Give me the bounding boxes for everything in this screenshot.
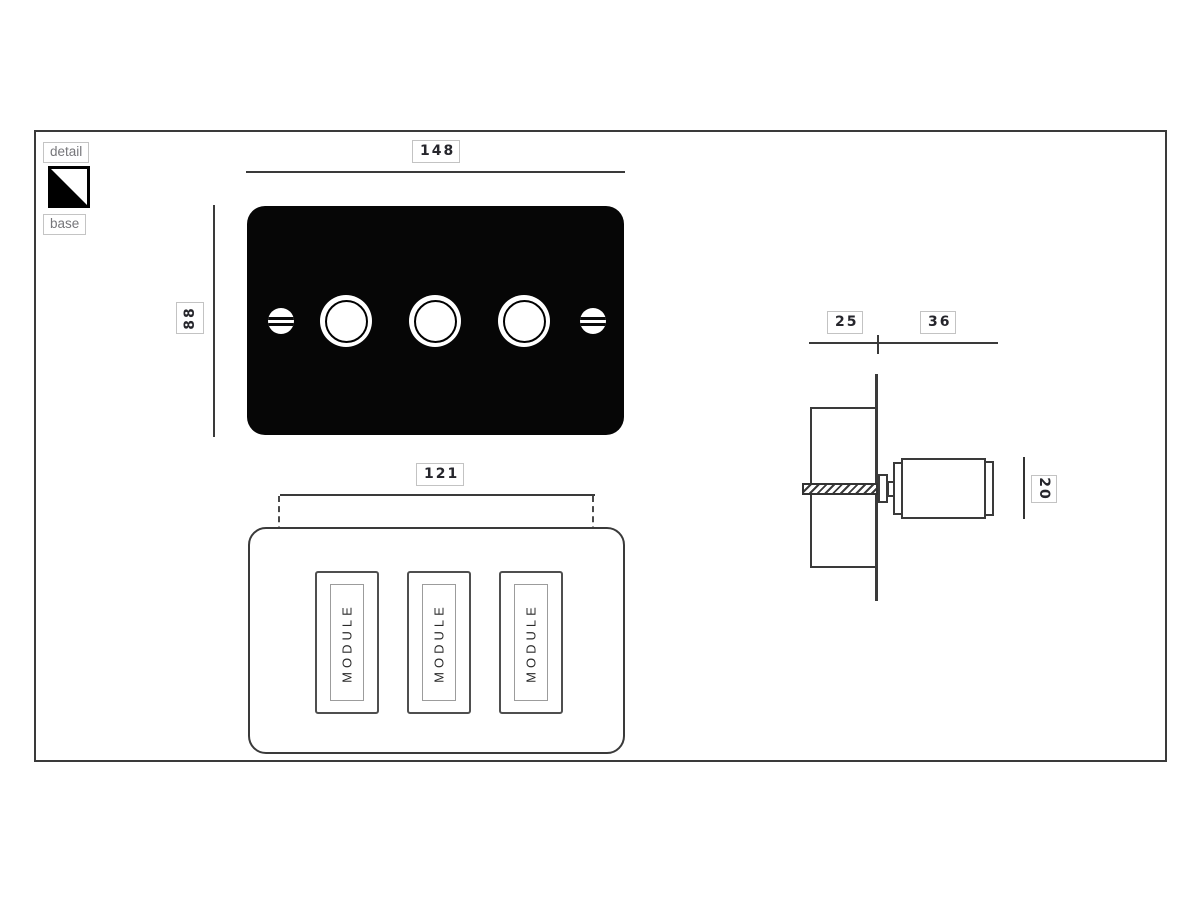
spec-sheet: detail base 148 88 121: [0, 0, 1200, 900]
knob-depth-dimension-label: 36: [920, 311, 956, 334]
screw-thread-icon: [802, 483, 878, 495]
module-window: MODULE: [422, 584, 456, 701]
module-label: MODULE: [524, 603, 539, 683]
base-tag: base: [43, 214, 86, 235]
front-height-dimension-label: 88: [176, 302, 204, 334]
module-slot-1: MODULE: [315, 571, 379, 714]
detail-tag: detail: [43, 142, 89, 163]
module-spacing-value: 121: [424, 466, 459, 482]
front-height-value: 88: [182, 306, 198, 329]
dimmer-knob-2: [409, 295, 461, 347]
depth-dimension-line: [809, 342, 998, 344]
front-width-value: 148: [420, 143, 455, 159]
knob-height-dimension-label: 20: [1031, 475, 1057, 503]
base-tag-label: base: [50, 216, 79, 231]
knob-cap: [414, 300, 457, 343]
finish-swatch-icon[interactable]: [48, 166, 90, 208]
front-height-dimension-line: [213, 205, 215, 437]
dimmer-knob-1: [320, 295, 372, 347]
screw-left-icon: [268, 308, 294, 334]
knob-height-value: 20: [1036, 477, 1052, 500]
faceplate-front-view: [247, 206, 624, 435]
knob-height-dimension-line: [1023, 457, 1025, 519]
knob-cap: [503, 300, 546, 343]
screw-slot: [580, 323, 606, 326]
box-depth-value: 25: [835, 314, 858, 330]
module-spacing-dimension-label: 121: [416, 463, 464, 486]
module-window: MODULE: [514, 584, 548, 701]
knob-depth-value: 36: [928, 314, 951, 330]
screw-slot: [268, 317, 294, 320]
module-slot-2: MODULE: [407, 571, 471, 714]
screw-slot: [268, 323, 294, 326]
screw-right-icon: [580, 308, 606, 334]
front-width-dimension-label: 148: [412, 140, 460, 163]
knob-body-side-view: [901, 458, 986, 519]
box-depth-dimension-label: 25: [827, 311, 863, 334]
knob-cap: [325, 300, 368, 343]
module-window: MODULE: [330, 584, 364, 701]
module-spacing-dimension-line: [280, 494, 595, 496]
module-label: MODULE: [432, 603, 447, 683]
front-width-dimension-line: [246, 171, 625, 173]
depth-dimension-tick: [877, 335, 879, 354]
module-label: MODULE: [340, 603, 355, 683]
module-slot-3: MODULE: [499, 571, 563, 714]
faceplate-back-view: MODULE MODULE MODULE: [248, 527, 625, 754]
dimmer-knob-3: [498, 295, 550, 347]
screw-slot: [580, 317, 606, 320]
detail-tag-label: detail: [50, 144, 82, 159]
